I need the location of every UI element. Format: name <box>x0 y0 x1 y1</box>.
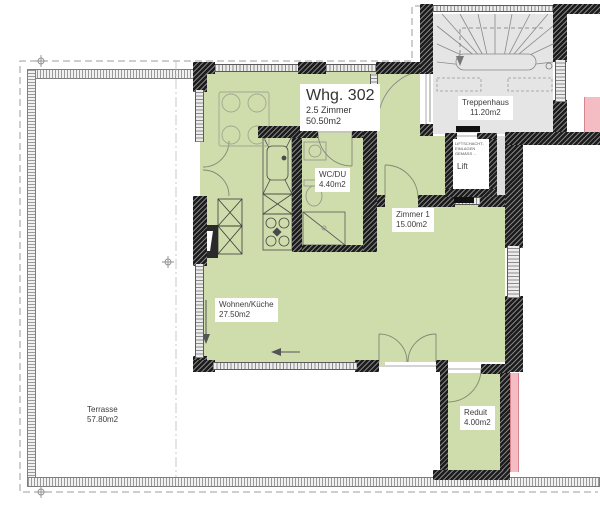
label-lift: Lift <box>457 162 468 171</box>
window-strip <box>215 64 298 72</box>
neighbor-strip-right <box>510 373 519 472</box>
window-strip <box>213 362 357 370</box>
terrace-railing-bottom <box>27 477 600 487</box>
label-terrasse: Terrasse 57.80m2 <box>83 403 122 427</box>
lift-note: LIFTSCHACHT- EINLAGEN GEMÄSS ... <box>455 141 491 156</box>
wall-segment <box>302 245 363 252</box>
label-wohnen: Wohnen/Küche 27.50m2 <box>215 298 278 322</box>
wall-segment <box>193 360 215 372</box>
wall-segment <box>477 133 497 139</box>
wall-segment <box>505 132 600 145</box>
wall-segment <box>363 126 377 252</box>
label-wcdu: WC/DU 4.40m2 <box>315 168 350 192</box>
floor-plan-canvas: Whg. 302 2.5 Zimmer 50.50m2 Treppenhaus … <box>0 0 600 522</box>
apartment-subtitle: 2.5 Zimmer <box>306 105 374 116</box>
label-treppenhaus: Treppenhaus 11.20m2 <box>458 96 513 120</box>
wall-segment <box>553 100 567 134</box>
wall-segment <box>505 145 523 248</box>
window-strip <box>326 64 376 72</box>
label-reduit: Reduit 4.00m2 <box>460 406 495 430</box>
lift-machinery-top <box>456 126 480 132</box>
wall-segment <box>440 371 448 473</box>
wall-segment <box>445 189 497 197</box>
window-strip <box>555 60 566 102</box>
wall-segment <box>420 124 433 136</box>
wall-segment <box>553 14 567 62</box>
survey-markers <box>35 55 174 498</box>
window-strip <box>195 90 204 142</box>
apartment-title-box: Whg. 302 2.5 Zimmer 50.50m2 <box>300 84 380 131</box>
wall-segment <box>193 196 207 266</box>
wall-segment <box>505 296 523 372</box>
wall-segment <box>500 373 510 473</box>
terrace-railing-top <box>27 69 195 79</box>
lift-shaft-side-floor <box>497 136 505 195</box>
lift-machinery-bottom <box>454 197 474 203</box>
label-zimmer1: Zimmer 1 15.00m2 <box>392 208 434 232</box>
wall-segment <box>553 4 600 14</box>
room-entry-hall-floor <box>383 74 420 196</box>
window-strip <box>433 5 553 12</box>
window-strip <box>195 264 204 358</box>
wall-segment <box>355 360 379 372</box>
wall-segment <box>445 133 457 139</box>
apartment-title: Whg. 302 <box>306 86 374 105</box>
wall-segment <box>433 470 510 480</box>
window-strip <box>507 246 520 298</box>
room-corridor-floor <box>420 136 445 196</box>
wall-segment <box>298 62 326 74</box>
terrace-railing-left <box>27 69 36 486</box>
wall-segment <box>377 195 385 207</box>
wall-segment <box>292 138 302 252</box>
wall-segment <box>420 4 433 72</box>
apartment-area: 50.50m2 <box>306 116 374 127</box>
wall-segment <box>193 62 207 92</box>
wall-segment <box>445 133 453 195</box>
